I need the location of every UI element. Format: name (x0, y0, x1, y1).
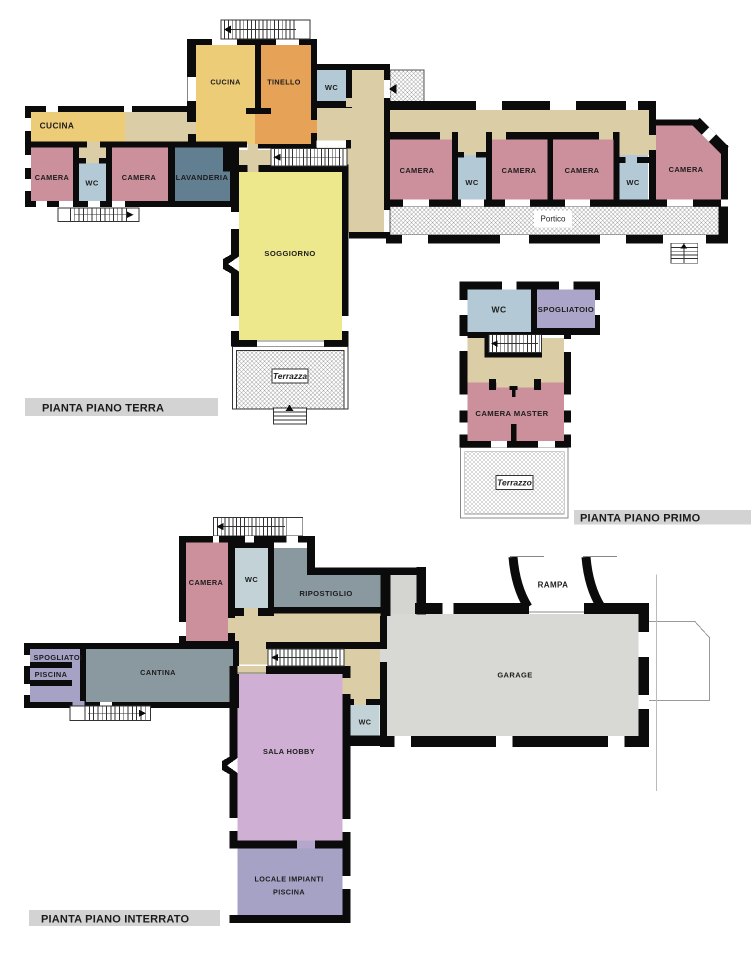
svg-text:Terrazzo: Terrazzo (497, 478, 532, 488)
svg-text:CAMERA: CAMERA (189, 578, 224, 587)
svg-text:SOGGIORNO: SOGGIORNO (264, 249, 315, 258)
svg-text:CANTINA: CANTINA (140, 668, 176, 677)
svg-text:SPOGLIATOIO: SPOGLIATOIO (538, 305, 594, 314)
svg-text:TINELLO: TINELLO (267, 78, 301, 87)
svg-text:PISCINA: PISCINA (35, 670, 68, 679)
svg-text:CAMERA: CAMERA (669, 165, 704, 174)
svg-text:SALA HOBBY: SALA HOBBY (263, 747, 315, 756)
svg-text:WC: WC (245, 575, 258, 584)
svg-text:CUCINA: CUCINA (40, 121, 75, 131)
svg-text:GARAGE: GARAGE (497, 671, 532, 680)
svg-text:WC: WC (492, 305, 507, 315)
svg-text:CAMERA MASTER: CAMERA MASTER (475, 409, 548, 418)
svg-text:PISCINA: PISCINA (273, 888, 305, 897)
svg-text:PIANTA PIANO TERRA: PIANTA PIANO TERRA (42, 403, 164, 415)
svg-text:LOCALE IMPIANTI: LOCALE IMPIANTI (254, 875, 323, 884)
svg-text:WC: WC (85, 179, 98, 188)
svg-text:LAVANDERIA: LAVANDERIA (176, 173, 229, 182)
svg-text:SPOGLIATOI: SPOGLIATOI (34, 653, 83, 662)
svg-text:CAMERA: CAMERA (502, 166, 537, 175)
svg-text:PIANTA PIANO INTERRATO: PIANTA PIANO INTERRATO (41, 914, 189, 926)
svg-text:CAMERA: CAMERA (400, 166, 435, 175)
svg-text:WC: WC (325, 83, 338, 92)
svg-text:PIANTA PIANO PRIMO: PIANTA PIANO PRIMO (580, 513, 701, 525)
svg-text:WC: WC (465, 178, 478, 187)
svg-text:RIPOSTIGLIO: RIPOSTIGLIO (299, 589, 352, 598)
svg-text:CUCINA: CUCINA (210, 78, 240, 87)
svg-text:WC: WC (626, 178, 639, 187)
svg-text:Portico: Portico (541, 215, 566, 224)
svg-text:RAMPA: RAMPA (538, 581, 569, 590)
svg-text:CAMERA: CAMERA (565, 166, 600, 175)
svg-text:WC: WC (359, 718, 372, 727)
svg-text:Terrazza: Terrazza (273, 371, 307, 381)
svg-text:CAMERA: CAMERA (122, 173, 157, 182)
svg-text:CAMERA: CAMERA (35, 173, 70, 182)
